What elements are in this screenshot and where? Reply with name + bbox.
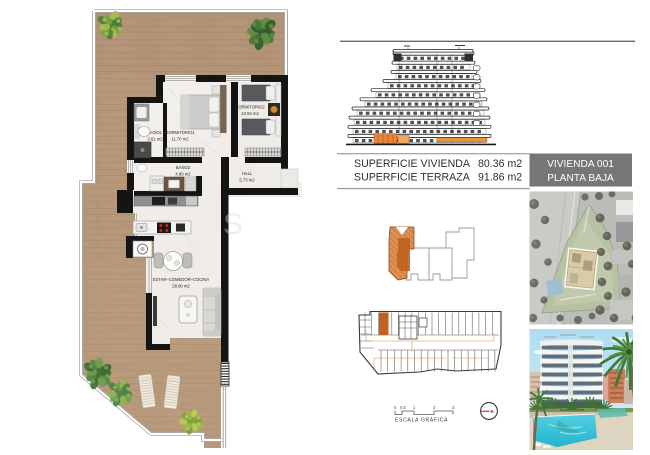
svg-text:10.53 m2: 10.53 m2 <box>241 111 259 116</box>
svg-text:5.73 m2: 5.73 m2 <box>239 178 255 183</box>
svg-text:N: N <box>491 410 494 414</box>
svg-text:PLANTA BAJA: PLANTA BAJA <box>547 173 614 184</box>
svg-text:ESTAR–COMEDOR–COCINA: ESTAR–COMEDOR–COCINA <box>153 277 210 282</box>
svg-text:HALL: HALL <box>242 171 253 176</box>
svg-text:3.61 m2: 3.61 m2 <box>147 137 163 142</box>
svg-text:S: S <box>223 208 243 241</box>
svg-text:3: 3 <box>452 405 455 410</box>
svg-text:DORMITORIO2: DORMITORIO2 <box>235 105 265 110</box>
svg-text:SUPERFICIE TERRAZA: SUPERFICIE TERRAZA <box>354 172 471 184</box>
svg-text:4.90 m2: 4.90 m2 <box>175 172 191 177</box>
svg-text:ESCALA GRÁFICA: ESCALA GRÁFICA <box>395 417 448 424</box>
svg-text:91.86 m2: 91.86 m2 <box>478 172 522 184</box>
svg-text:80.36 m2: 80.36 m2 <box>478 158 522 170</box>
svg-text:1: 1 <box>413 405 416 410</box>
svg-text:DORMITORIO1: DORMITORIO1 <box>165 130 195 135</box>
svg-text:BAÑO2: BAÑO2 <box>176 165 191 170</box>
svg-text:0: 0 <box>394 405 397 410</box>
svg-text:VIVIENDA 001: VIVIENDA 001 <box>547 159 614 170</box>
svg-text:2: 2 <box>433 405 436 410</box>
svg-text:SUPERFICIE VIVIENDA: SUPERFICIE VIVIENDA <box>354 158 471 170</box>
svg-text:28.90 m2: 28.90 m2 <box>172 284 190 289</box>
svg-text:11.70 m2: 11.70 m2 <box>171 137 189 142</box>
svg-text:0.5: 0.5 <box>400 405 406 410</box>
